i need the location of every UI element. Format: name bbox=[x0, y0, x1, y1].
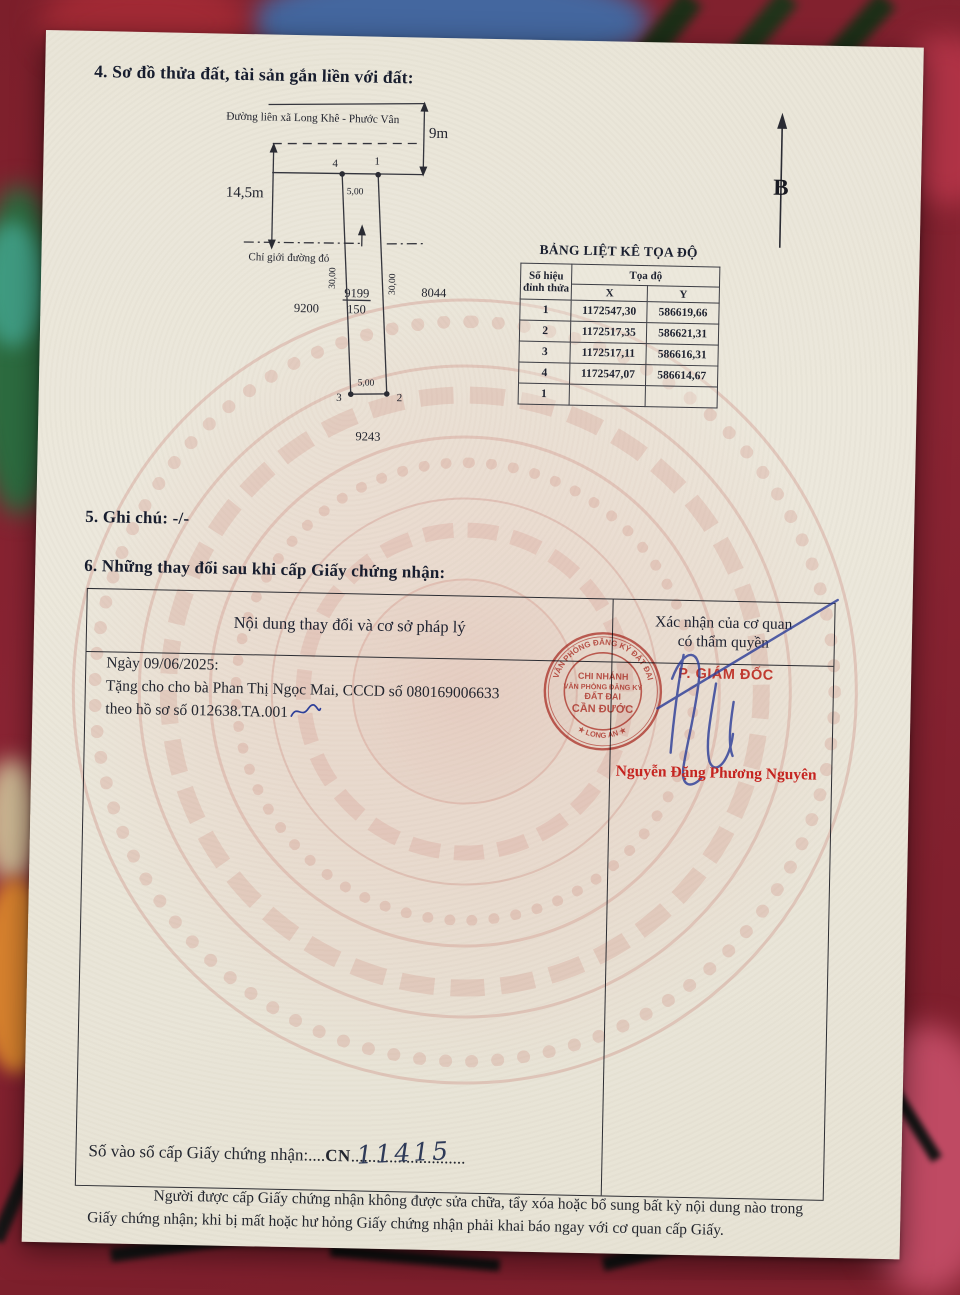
road-edge-line bbox=[269, 100, 425, 107]
vertex-4-label: 4 bbox=[332, 158, 338, 170]
coord-x: 1172547,30 bbox=[571, 300, 647, 323]
vertex-3-label: 3 bbox=[336, 392, 342, 404]
north-label: B bbox=[773, 175, 789, 200]
coord-y: 586616,31 bbox=[646, 344, 718, 366]
parcel-number-label: 9199 bbox=[344, 286, 369, 300]
dim-14-5m-label: 14,5m bbox=[226, 185, 265, 202]
col-header-vertex-line2: đỉnh thửa bbox=[523, 281, 570, 294]
coord-y bbox=[645, 386, 717, 408]
signature-stroke bbox=[730, 702, 734, 756]
vertex-no: 2 bbox=[519, 320, 571, 342]
dot-leader: .... bbox=[308, 1145, 325, 1164]
vertex-no: 3 bbox=[519, 341, 571, 363]
col-header-vertex-line1: Số hiệu bbox=[523, 269, 570, 282]
section4-title: 4. Sơ đồ thửa đất, tài sản gắn liền với … bbox=[94, 61, 414, 88]
certificate-page: 4. Sơ đồ thửa đất, tài sản gắn liền với … bbox=[22, 30, 924, 1259]
vertex-2-label: 2 bbox=[397, 392, 403, 404]
road-width-arrow bbox=[423, 106, 424, 174]
coord-y: 586619,66 bbox=[647, 302, 719, 324]
north-arrowhead bbox=[777, 113, 787, 129]
change-entry-text: Ngày 09/06/2025: Tặng cho cho bà Phan Th… bbox=[105, 651, 606, 730]
arrowhead-up bbox=[358, 224, 366, 235]
vertex-no: 4 bbox=[519, 362, 571, 384]
dim-left-side-label: 30,00 bbox=[328, 267, 338, 289]
pen-flourish bbox=[288, 701, 322, 722]
plot-left-edge bbox=[338, 174, 355, 394]
col-header-vertex: Số hiệu đỉnh thửa bbox=[520, 263, 572, 300]
coord-x bbox=[569, 384, 645, 407]
frontage-arrow bbox=[272, 146, 274, 248]
arrowhead-down bbox=[268, 239, 276, 249]
parcel-area-label: 150 bbox=[347, 302, 366, 316]
register-prefix: CN bbox=[325, 1146, 351, 1166]
neighbor-left-label: 9200 bbox=[294, 301, 319, 315]
red-boundary-dashdot-right bbox=[387, 243, 425, 245]
vertex-no: 1 bbox=[520, 299, 572, 321]
coord-x: 1172547,07 bbox=[570, 363, 646, 386]
dim-top-label: 5,00 bbox=[347, 187, 364, 197]
col-header-y: Y bbox=[647, 286, 719, 303]
coordinate-table-title: BẢNG LIỆT KÊ TỌA ĐỘ bbox=[521, 242, 717, 262]
coordinate-table-block: BẢNG LIỆT KÊ TỌA ĐỘ Số hiệu đỉnh thửa Tọ… bbox=[518, 242, 721, 409]
dim-bottom-label: 5,00 bbox=[358, 378, 375, 388]
dim-right-side-label: 30,00 bbox=[388, 273, 398, 295]
road-name-label: Đường liên xã Long Khê - Phước Vân bbox=[226, 111, 400, 126]
col-header-x: X bbox=[572, 284, 648, 302]
vertex-dot-3 bbox=[348, 391, 354, 397]
neighbor-right-label: 8044 bbox=[421, 286, 447, 301]
vertex-dot-1 bbox=[375, 172, 381, 178]
coord-x: 1172517,35 bbox=[571, 321, 647, 344]
north-arrow: B bbox=[763, 102, 806, 263]
entry-dossier-number: theo hồ sơ số 012638.TA.001 bbox=[105, 700, 288, 721]
vertex-dot-2 bbox=[384, 391, 390, 397]
photo-canvas: { "sections": { "s4_title": "4. Sơ đồ th… bbox=[0, 0, 960, 1280]
coordinate-table: Số hiệu đỉnh thửa Tọa độ X Y 1 1172547,3… bbox=[518, 263, 721, 409]
table-row: 1 bbox=[518, 383, 717, 408]
coord-x: 1172517,11 bbox=[570, 342, 646, 365]
register-number-slot: ...........................11415 bbox=[351, 1146, 466, 1168]
vertex-dot-4 bbox=[339, 171, 345, 177]
section5-note: 5. Ghi chú: -/- bbox=[85, 507, 189, 529]
changes-col-content-header: Nội dung thay đổi và cơ sở pháp lý bbox=[87, 589, 614, 662]
dim-9m-label: 9m bbox=[429, 126, 449, 142]
red-boundary-label: Chỉ giới đường đỏ bbox=[248, 251, 330, 265]
plot-bottom-edge bbox=[351, 393, 387, 395]
vertex-1-label: 1 bbox=[374, 156, 380, 168]
handwritten-register-number: 11415 bbox=[356, 1136, 452, 1170]
road-dashed-line bbox=[273, 141, 420, 147]
parcel-diagram: Đường liên xã Long Khê - Phước Vân 9m 14… bbox=[214, 92, 532, 488]
plot-top-edge bbox=[272, 172, 423, 176]
neighbor-bottom-label: 9243 bbox=[355, 429, 380, 443]
red-boundary-dashdot-left bbox=[244, 241, 364, 244]
table-row: Số hiệu đỉnh thửa Tọa độ bbox=[521, 263, 720, 287]
coord-y: 586621,31 bbox=[647, 323, 719, 345]
register-label: Số vào sổ cấp Giấy chứng nhận: bbox=[88, 1141, 308, 1164]
vertex-no: 1 bbox=[518, 383, 570, 405]
coord-y: 586614,67 bbox=[646, 365, 718, 387]
